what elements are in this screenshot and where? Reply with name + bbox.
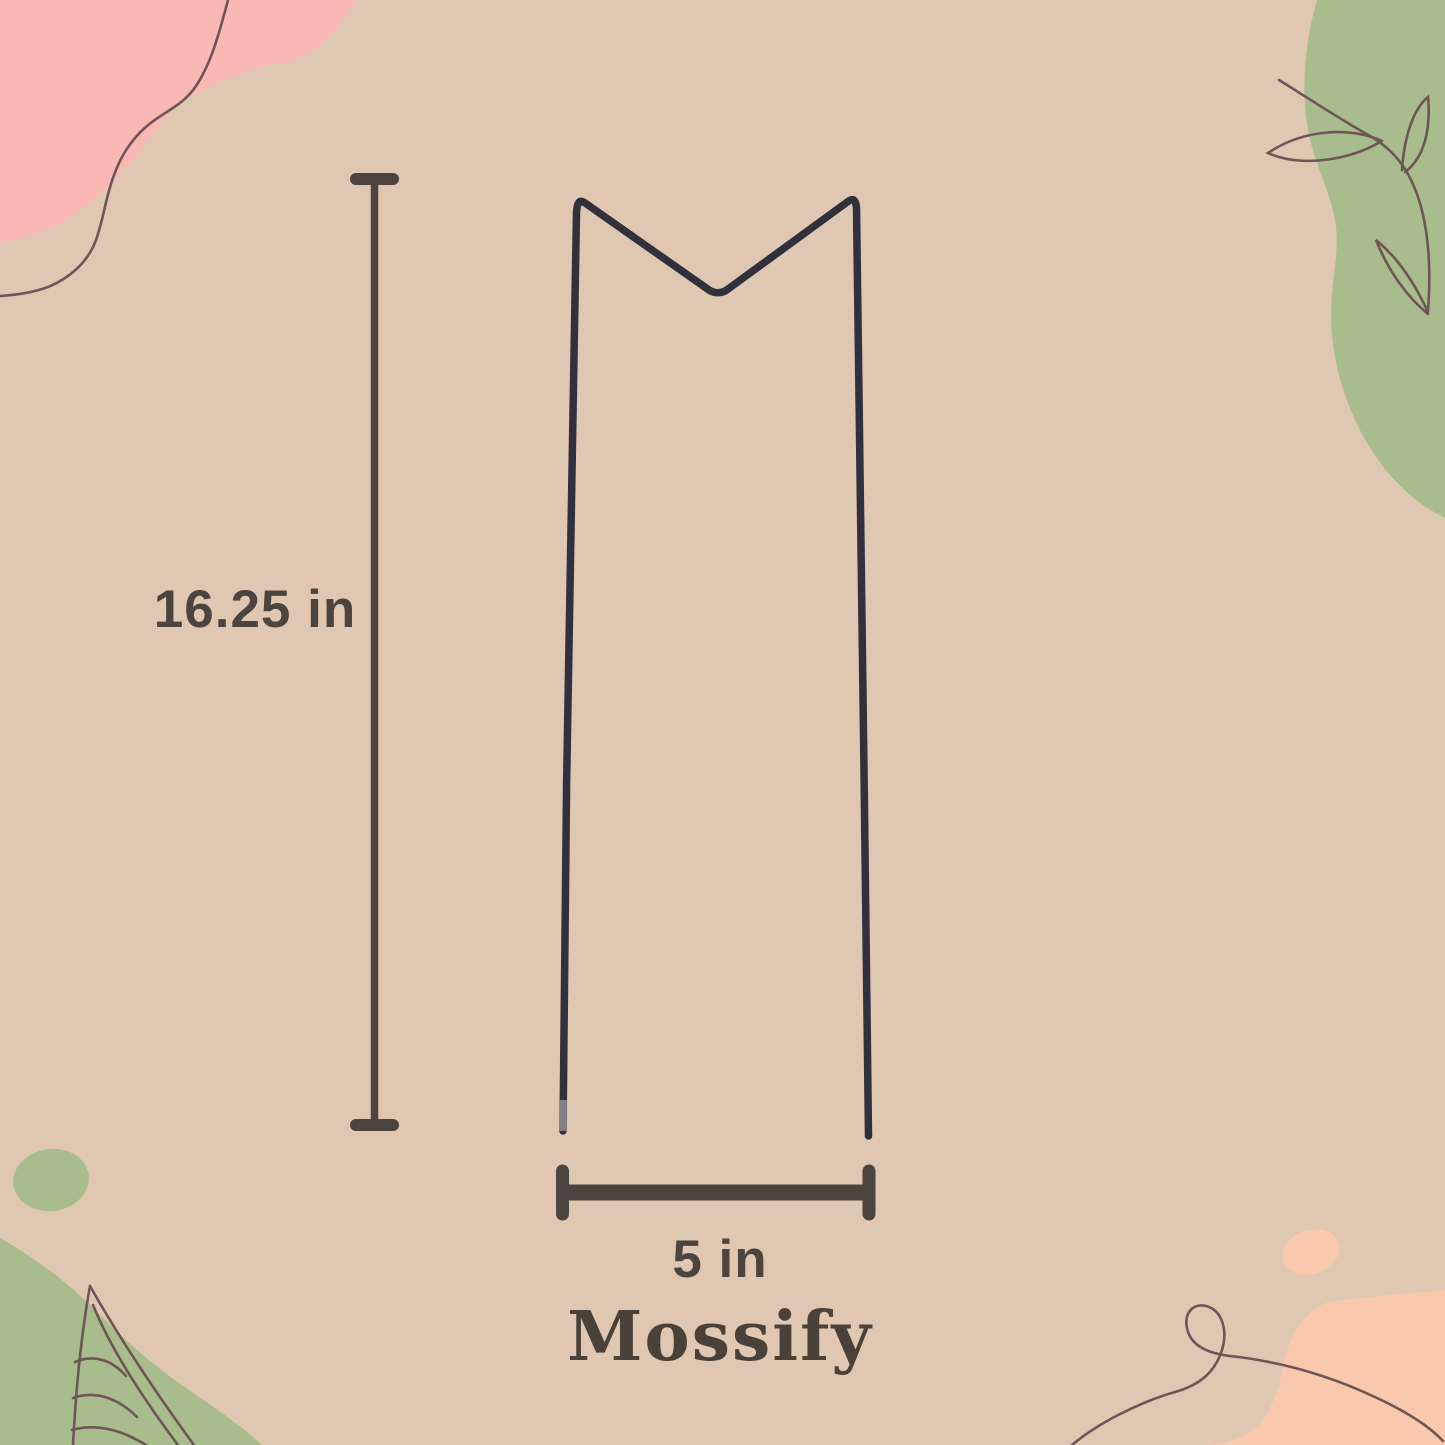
product-dimension-image: 16.25 in 5 in Mossify [0,0,1445,1445]
wire-stake-image [563,200,869,1136]
height-dimension-label: 16.25 in [145,582,365,638]
brand-logo-text: Mossify [495,1300,945,1375]
width-dimension-label: 5 in [595,1232,845,1288]
height-dimension-line [356,179,393,1125]
width-dimension-line [562,1171,869,1214]
product-and-dimensions [0,0,1445,1445]
